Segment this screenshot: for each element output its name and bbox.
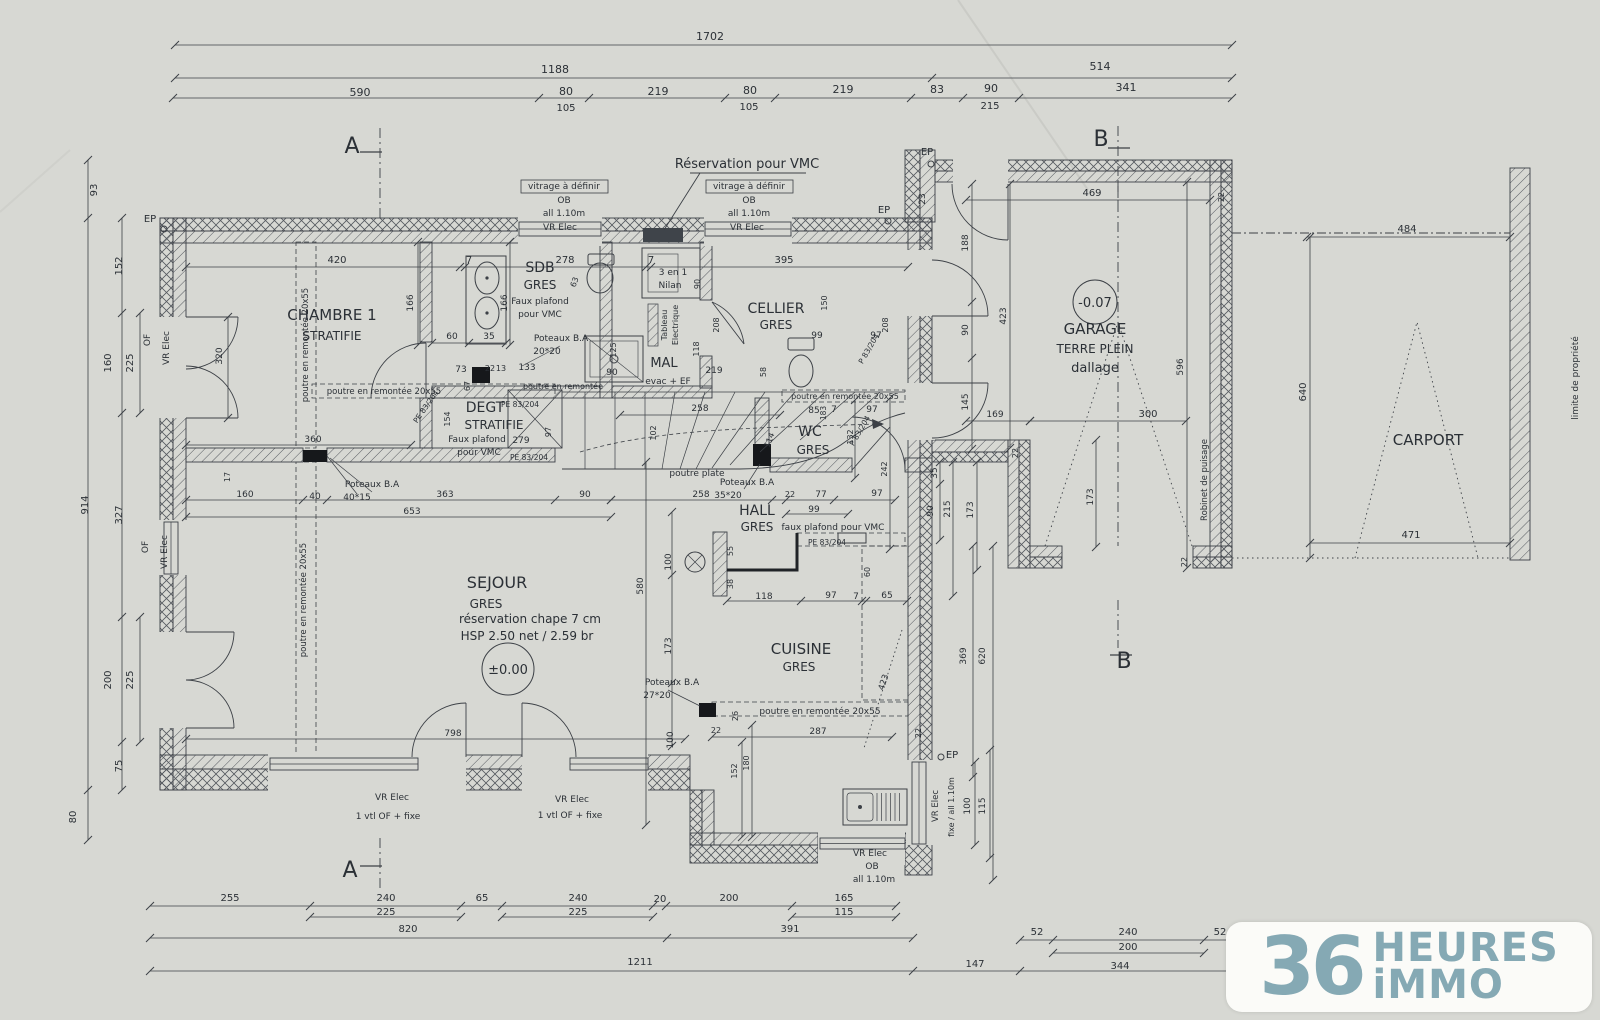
- label-105: 105: [556, 103, 575, 114]
- label-vitrage-d-finir: vitrage à définir: [528, 181, 600, 192]
- label-154: 154: [443, 411, 452, 426]
- room-garage: GARAGE: [1064, 320, 1127, 338]
- label-145: 145: [961, 393, 971, 410]
- room-hall: HALL: [739, 503, 775, 519]
- label-vr-elec: VR Elec: [375, 793, 409, 803]
- label-423: 423: [877, 673, 892, 692]
- label-55: 55: [726, 546, 735, 556]
- label-620: 620: [978, 647, 988, 664]
- label-vr-elec: VR Elec: [730, 223, 764, 233]
- label-poutre-en-remont-e-20x55: poutre en remontée 20x55: [327, 386, 441, 397]
- label-3-en-1: 3 en 1: [659, 268, 687, 278]
- label-terre-plein: TERRE PLEIN: [1055, 342, 1133, 356]
- label-90: 90: [961, 324, 971, 336]
- label-poutre-en-remont-e-20x55: poutre en remontée 20x55: [298, 543, 309, 657]
- label-215: 215: [943, 500, 953, 517]
- label-60: 60: [446, 332, 458, 342]
- label-pour-vmc: pour VMC: [518, 310, 562, 320]
- label-219: 219: [705, 366, 722, 376]
- label-341: 341: [1116, 81, 1137, 94]
- label-820: 820: [398, 924, 417, 935]
- label-469: 469: [1082, 188, 1101, 199]
- label-22: 22: [914, 728, 923, 738]
- label-152: 152: [730, 763, 739, 778]
- label-22: 22: [1180, 557, 1189, 567]
- label-279: 279: [512, 436, 529, 446]
- label-173: 173: [664, 637, 674, 654]
- label-poteaux-b.a: Poteaux B.A: [720, 478, 775, 488]
- label-vr-elec: VR Elec: [160, 535, 170, 569]
- label-640: 640: [1298, 382, 1309, 401]
- label-23: 23: [918, 193, 928, 204]
- label-100: 100: [666, 731, 676, 748]
- label-vr-elec: VR Elec: [543, 223, 577, 233]
- room-mal: MAL: [650, 356, 678, 371]
- label-240: 240: [376, 893, 395, 904]
- label-vitrage-d-finir: vitrage à définir: [713, 181, 785, 192]
- label-pe-83-204: PE 83/204: [808, 538, 846, 547]
- label-99: 99: [808, 505, 820, 515]
- label-vr-elec: VR Elec: [162, 331, 172, 365]
- label-395: 395: [774, 255, 793, 266]
- label-80: 80: [559, 85, 573, 98]
- label-150: 150: [820, 295, 829, 310]
- floor-plan-drawing: 1702118851459080219802198390341105105215…: [0, 0, 1600, 1020]
- label-242: 242: [880, 461, 889, 476]
- dim-total-top: 1702: [696, 30, 724, 43]
- label-97: 97: [544, 427, 553, 437]
- label-169: 169: [986, 410, 1003, 420]
- label-125: 125: [609, 342, 618, 357]
- section-mark-b-top: B: [1093, 127, 1108, 152]
- label-173: 173: [966, 501, 976, 518]
- label-52: 52: [1214, 927, 1227, 938]
- label-22: 22: [785, 490, 795, 499]
- label-188: 188: [961, 234, 971, 251]
- label-100: 100: [664, 553, 674, 570]
- room-degt: DEGT: [466, 400, 505, 416]
- label-robinet-de-puisage: Robinet de puisage: [1200, 439, 1210, 521]
- label-258: 258: [691, 404, 708, 414]
- label-faux-plafond: Faux plafond: [448, 435, 506, 445]
- label-115: 115: [978, 797, 988, 814]
- label-80: 80: [68, 811, 79, 824]
- label-poutre-en-remont-e-20x55: poutre en remontée 20x55: [759, 706, 880, 717]
- label-stratifie: STRATIFIE: [303, 329, 362, 343]
- label-35: 35: [483, 332, 494, 342]
- label-ob: OB: [865, 862, 878, 872]
- label-poteaux-b.a: Poteaux B.A: [534, 334, 589, 344]
- label-1-vtl-of-fixe: 1 vtl OF + fixe: [538, 811, 603, 821]
- note-vmc: Réservation pour VMC: [675, 157, 819, 172]
- label-pe-83-204: PE 83/204: [501, 400, 539, 409]
- label-653: 653: [403, 507, 420, 517]
- label-132: 132: [846, 429, 855, 444]
- label-240: 240: [1118, 927, 1137, 938]
- label-391: 391: [780, 924, 799, 935]
- label-225: 225: [568, 907, 587, 918]
- label-1188: 1188: [541, 63, 569, 76]
- label-ep: EP: [878, 205, 890, 216]
- label-r-servation-chape-7-cm: réservation chape 7 cm: [459, 612, 601, 626]
- label-363: 363: [436, 490, 453, 500]
- label-ep: EP: [921, 147, 933, 158]
- label-369: 369: [959, 647, 969, 664]
- label-344: 344: [1110, 961, 1129, 972]
- label-52: 52: [1031, 927, 1044, 938]
- label-484: 484: [1397, 224, 1416, 235]
- label-of: OF: [143, 334, 153, 346]
- room-sejour: SEJOUR: [467, 573, 527, 592]
- label-poteaux-b.a: Poteaux B.A: [645, 678, 700, 688]
- label-152: 152: [114, 256, 125, 275]
- label-20: 20: [654, 894, 667, 905]
- label-99: 99: [811, 331, 823, 341]
- label-514: 514: [1090, 60, 1111, 73]
- label-85: 85: [808, 406, 819, 416]
- room-cellier: CELLIER: [748, 301, 805, 317]
- label-278: 278: [555, 255, 574, 266]
- label-180: 180: [742, 755, 751, 770]
- label-320: 320: [215, 347, 225, 364]
- label-58: 58: [759, 367, 768, 377]
- label-26: 26: [731, 711, 740, 721]
- label-102: 102: [649, 425, 658, 440]
- label-65: 65: [476, 893, 489, 904]
- label-160: 160: [236, 490, 253, 500]
- label-vr-elec: VR Elec: [931, 790, 941, 822]
- label-27-20: 27*20: [643, 691, 671, 701]
- label-147: 147: [965, 959, 984, 970]
- label-300: 300: [1138, 409, 1157, 420]
- label-115: 115: [834, 907, 853, 918]
- label-90: 90: [693, 279, 702, 289]
- label-tableau: Tableau: [660, 310, 669, 342]
- label-77: 77: [815, 490, 826, 500]
- label-22: 22: [711, 726, 721, 735]
- label-22: 22: [1011, 448, 1020, 458]
- label-75: 75: [114, 760, 125, 773]
- label-40-15: 40*15: [343, 493, 370, 503]
- label-vr-elec: VR Elec: [853, 849, 887, 859]
- scanned-floor-plan-page: 1702118851459080219802198390341105105215…: [0, 0, 1600, 1020]
- label-stratifie: STRATIFIE: [465, 418, 524, 432]
- label-gres: GRES: [470, 597, 503, 611]
- label-423: 423: [999, 307, 1009, 324]
- label-166: 166: [406, 294, 416, 311]
- label-poutre-plate: poutre plate: [669, 469, 725, 479]
- label-hsp-2.50-net-2.59-br: HSP 2.50 net / 2.59 br: [461, 629, 594, 643]
- label-ob: OB: [742, 196, 755, 206]
- label-83: 83: [930, 83, 944, 96]
- label-all-1.10m: all 1.10m: [543, 209, 585, 219]
- label-evac-ef: evac + EF: [645, 377, 690, 387]
- label-35-20: 35*20: [714, 491, 742, 501]
- label-22: 22: [485, 364, 495, 373]
- label-poutre-en-remont-e-20x55: poutre en remontée 20x55: [791, 391, 899, 401]
- level-sejour: ±0.00: [488, 663, 528, 678]
- label-ep: EP: [946, 750, 958, 761]
- level-garage: -0.07: [1078, 296, 1112, 311]
- label-vr-elec: VR Elec: [555, 795, 589, 805]
- label-20-20: 20*20: [533, 347, 561, 357]
- room-sdb: SDB: [525, 260, 554, 276]
- label-7: 7: [648, 255, 654, 266]
- label-596: 596: [1176, 358, 1186, 375]
- label-118: 118: [692, 341, 701, 356]
- label-poteaux-b.a: Poteaux B.A: [345, 480, 400, 490]
- label-electrique: Electrique: [671, 305, 680, 345]
- room-carport: CARPORT: [1393, 431, 1464, 449]
- label-faux-plafond: Faux plafond: [511, 297, 569, 307]
- wall-openings: [157, 158, 1008, 865]
- label-118: 118: [755, 592, 772, 602]
- label-105: 105: [739, 102, 758, 113]
- logo-word-immo: iMMO: [1373, 967, 1559, 1004]
- label-97: 97: [825, 591, 836, 601]
- label-13: 13: [496, 364, 506, 373]
- label-ep: EP: [144, 214, 156, 225]
- label-all-1.10m: all 1.10m: [728, 209, 770, 219]
- label-914: 914: [80, 495, 91, 514]
- label-7: 7: [831, 405, 837, 415]
- label-gres: GRES: [524, 278, 557, 292]
- label-215: 215: [980, 101, 999, 112]
- label-90: 90: [984, 82, 998, 95]
- label-fixe-all-1.10m: fixe / all 1.10m: [947, 777, 956, 837]
- label-327: 327: [114, 505, 125, 524]
- label-208: 208: [881, 317, 890, 332]
- label-97: 97: [866, 405, 877, 415]
- logo-number: 36: [1259, 927, 1362, 1007]
- section-mark-a-bottom: A: [342, 858, 357, 883]
- section-mark-b-bottom: B: [1116, 649, 1131, 674]
- label-200: 200: [1118, 942, 1137, 953]
- label-gres: GRES: [760, 318, 793, 332]
- label-165: 165: [834, 893, 853, 904]
- label-93: 93: [89, 184, 100, 197]
- label-gres: GRES: [797, 443, 830, 457]
- label-208: 208: [712, 317, 721, 332]
- agency-logo: 36 HEURES iMMO: [1226, 922, 1592, 1012]
- label-219: 219: [648, 85, 669, 98]
- label-38: 38: [726, 579, 735, 589]
- label-63: 63: [569, 276, 581, 289]
- label-80: 80: [743, 84, 757, 97]
- label-173: 173: [1086, 488, 1096, 505]
- label-17: 17: [223, 472, 232, 482]
- label-40: 40: [309, 492, 321, 502]
- label-471: 471: [1401, 530, 1420, 541]
- label-65: 65: [881, 591, 892, 601]
- label-100: 100: [963, 797, 973, 814]
- label-225: 225: [376, 907, 395, 918]
- label-gres: GRES: [783, 660, 816, 674]
- label-pour-vmc: pour VMC: [457, 448, 501, 458]
- label-dallage: dallage: [1071, 361, 1119, 376]
- label-poutre-en-remont-e: poutre en remontée: [523, 381, 603, 391]
- label-133: 133: [518, 363, 535, 373]
- label-7: 7: [466, 255, 472, 266]
- note-limite: limite de propriété: [1570, 336, 1581, 420]
- label-nilan: Nilan: [659, 281, 682, 291]
- label-225: 225: [125, 670, 136, 689]
- label-160: 160: [103, 353, 114, 372]
- label-73: 73: [455, 365, 466, 375]
- label-poutre-en-remont-e-20x55: poutre en remontée 20x55: [300, 288, 311, 402]
- dim-total-bottom: 1211: [627, 957, 652, 968]
- label-90: 90: [606, 368, 618, 378]
- label-183: 183: [819, 406, 828, 421]
- label-90: 90: [579, 490, 591, 500]
- label-all-1.10m: all 1.10m: [853, 875, 895, 885]
- label-67: 67: [463, 381, 472, 391]
- label-97: 97: [871, 489, 882, 499]
- label-of: OF: [141, 541, 151, 553]
- label-360: 360: [304, 435, 321, 445]
- label-200: 200: [103, 670, 114, 689]
- label-p-83-204: P 83/204: [857, 332, 882, 366]
- room-cuisine: CUISINE: [771, 640, 832, 658]
- label-219: 219: [833, 83, 854, 96]
- label-255: 255: [220, 893, 239, 904]
- label-590: 590: [350, 86, 371, 99]
- section-mark-a-top: A: [344, 134, 359, 159]
- label-200: 200: [719, 893, 738, 904]
- label-580: 580: [636, 577, 646, 594]
- label-225: 225: [125, 353, 136, 372]
- label-35: 35: [930, 467, 940, 478]
- label-7: 7: [853, 592, 859, 602]
- label-22: 22: [1217, 192, 1226, 202]
- label-258: 258: [692, 490, 709, 500]
- label-60: 60: [863, 567, 872, 577]
- label-240: 240: [568, 893, 587, 904]
- label-420: 420: [327, 255, 346, 266]
- label-166: 166: [500, 294, 510, 311]
- label-ob: OB: [557, 196, 570, 206]
- label-pe-83-204: PE 83/204: [510, 453, 548, 462]
- plan-labels: 1702118851459080219802198390341105105215…: [68, 30, 1581, 972]
- label-798: 798: [444, 729, 461, 739]
- label-287: 287: [809, 727, 826, 737]
- label-gres: GRES: [741, 520, 774, 534]
- label-90: 90: [926, 505, 936, 517]
- label-faux-plafond-pour-vmc: faux plafond pour VMC: [782, 523, 885, 533]
- room-wc: WC: [798, 424, 822, 440]
- label-1-vtl-of-fixe: 1 vtl OF + fixe: [356, 812, 421, 822]
